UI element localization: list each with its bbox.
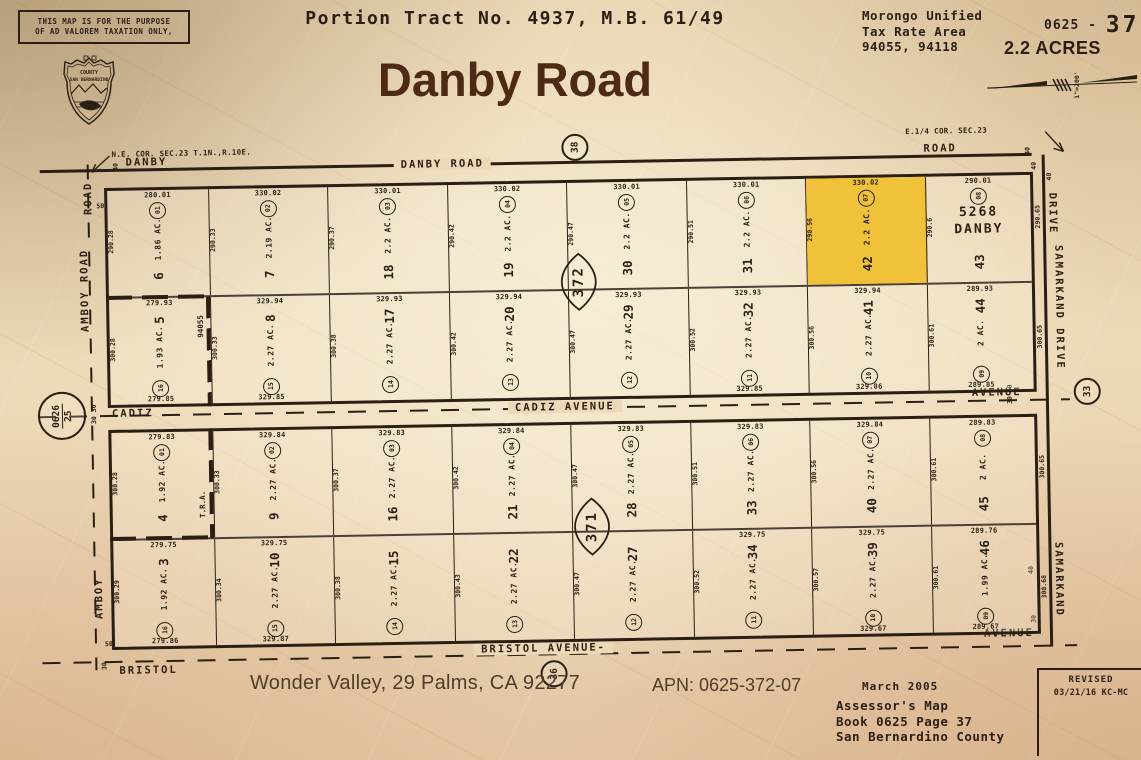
revision-box: REVISED 03/21/16 KC-MC bbox=[1037, 668, 1141, 756]
parcel-acreage: 2.27 AC. bbox=[624, 317, 634, 360]
cadiz-avenue-label-center: CADIZ AVENUE bbox=[508, 400, 622, 414]
samarkand-drive-label: SAMARKAND DRIVE bbox=[1052, 245, 1066, 370]
parcel-acreage: 1.92 AC. bbox=[158, 459, 168, 502]
parcel-circle-number: 12 bbox=[621, 371, 638, 388]
acreage-label: 2.2 ACRES bbox=[1004, 38, 1101, 59]
parcel-acreage: 1.93 AC. bbox=[155, 326, 165, 369]
parcel-lot-number: 30 bbox=[620, 260, 635, 275]
parcel-acreage: 2.2 AC. bbox=[503, 214, 513, 251]
dimension-top: 329.84 bbox=[213, 430, 332, 440]
county-seal: COUNTY SAN BERNARDINO bbox=[54, 54, 124, 128]
dimension-bottom: 329.85 bbox=[690, 384, 809, 394]
dimension-top: 279.75 bbox=[113, 540, 214, 550]
dimension-top: 329.83 bbox=[571, 424, 690, 434]
samarkand-drive-label-top: DRIVE bbox=[1046, 193, 1059, 235]
parcel-circle-number: 14 bbox=[386, 617, 403, 634]
parcel-acreage: 2.27 AC. bbox=[627, 451, 637, 494]
parcel-9[interactable]: 329.84300.33022.27 AC.9 bbox=[213, 429, 334, 537]
dimension-top: 329.94 bbox=[450, 292, 569, 302]
svg-text:371: 371 bbox=[584, 511, 601, 543]
dimension-top: 330.01 bbox=[687, 180, 806, 190]
parcel-acreage: 2.27 AC. bbox=[270, 566, 280, 609]
parcel-circle-number: 05 bbox=[618, 193, 635, 210]
parcel-circle-number: 02 bbox=[264, 442, 281, 459]
parcel-acreage: 2.27 AC. bbox=[385, 321, 395, 364]
parcel-acreage: 2.27 AC. bbox=[505, 319, 515, 362]
dimension-left: 300.52 bbox=[688, 324, 697, 354]
dimension-top: 290.01 bbox=[926, 176, 1030, 186]
parcel-31[interactable]: 330.01290.51062.2 AC.31 bbox=[687, 179, 808, 287]
parcel-32[interactable]: 329.93300.52112.27 AC.32329.85 bbox=[689, 287, 810, 395]
dimension-bottom: 329.67 bbox=[814, 624, 933, 634]
parcel-10[interactable]: 329.75300.34152.27 AC.10329.87 bbox=[215, 537, 336, 645]
parcel-lot-number: 29 bbox=[621, 305, 636, 320]
bristol-avenue-label-center: BRISTOL AVENUE- bbox=[474, 641, 613, 655]
apn-text: APN: 0625-372-07 bbox=[652, 675, 801, 696]
dimension-top: 279.83 bbox=[111, 432, 212, 442]
danby-road-label-center: DANBY ROAD bbox=[394, 157, 491, 171]
parcel-lot-number: 10 bbox=[267, 553, 282, 568]
parcel-lot-number: 44 bbox=[973, 298, 988, 313]
dimension-left: 300.56 bbox=[808, 322, 817, 352]
dimension-left: 300.47 bbox=[569, 326, 578, 356]
parcel-circle-number: 03 bbox=[383, 440, 400, 457]
parcel-circle-number: 08 bbox=[970, 187, 987, 204]
parcel-circle-number: 02 bbox=[260, 200, 277, 217]
dimension-left: 300.61 bbox=[932, 562, 941, 592]
parcel-acreage: 2.27 AC. bbox=[390, 563, 400, 606]
parcel-39[interactable]: 329.75300.57102.27 AC.39329.67 bbox=[812, 527, 933, 635]
dimension-left: 300.28 bbox=[111, 468, 120, 498]
parcel-acreage: 2.2 AC. bbox=[742, 210, 752, 247]
parcel-lot-number: 15 bbox=[386, 551, 401, 566]
dimension-top: 330.02 bbox=[209, 188, 328, 198]
parcel-acreage: 2.27 AC. bbox=[268, 458, 278, 501]
parcel-18[interactable]: 330.01290.37032.2 AC.18 bbox=[328, 185, 449, 293]
dimension-bottom: 289.67 bbox=[934, 622, 1038, 632]
parcel-circle-number: 01 bbox=[153, 444, 170, 461]
parcel-15[interactable]: 300.38142.27 AC.15 bbox=[334, 535, 455, 643]
assessor-map-text: Assessor's Map Book 0625 Page 37 San Ber… bbox=[836, 698, 1005, 745]
parcel-acreage: 2 AC. bbox=[976, 319, 985, 346]
samarkand-circle-33: 33 bbox=[1074, 378, 1101, 405]
parcel-7[interactable]: 330.02290.33022.19 AC.7 bbox=[209, 187, 330, 295]
parcel-acreage: 2.2 AC. bbox=[383, 216, 393, 253]
book-prefix: 0625 - bbox=[1044, 18, 1097, 33]
dimension-left: 300.52 bbox=[693, 566, 702, 596]
dimension-right-371-lower: 300.68 bbox=[1040, 575, 1048, 599]
dimension-bottom: 279.85 bbox=[111, 394, 212, 404]
dimension-left: 290.51 bbox=[686, 216, 695, 246]
parcel-40[interactable]: 329.84300.56072.27 AC.40 bbox=[811, 419, 932, 527]
dimension-right-372-lower: 300.65 bbox=[1036, 325, 1044, 349]
dimension-left: 300.43 bbox=[453, 571, 462, 601]
bristol-avenue-label-left: BRISTOL bbox=[119, 664, 177, 677]
dimension-top: 329.75 bbox=[693, 530, 812, 540]
dimension-top: 329.84 bbox=[452, 426, 571, 436]
parcel-circle-number: 05 bbox=[622, 435, 639, 452]
parcel-circle-number: 11 bbox=[745, 611, 762, 628]
dimension-left: 290.33 bbox=[208, 225, 217, 255]
e-quarter-corner-label: E.1/4 COR. SEC.23 bbox=[905, 126, 987, 136]
page-number: 37 bbox=[1106, 12, 1140, 38]
parcel-acreage: 1.86 AC. bbox=[153, 218, 163, 261]
dimension-left: 300.29 bbox=[113, 576, 122, 606]
parcel-lot-number: 3 bbox=[156, 558, 171, 566]
parcel-5[interactable]: 279.93300.28161.93 AC.5279.85 bbox=[109, 297, 212, 405]
parcel-16[interactable]: 329.83300.37032.27 AC.16 bbox=[332, 427, 453, 535]
dimension-top: 329.83 bbox=[691, 422, 810, 432]
parcel-lot-number: 31 bbox=[740, 258, 755, 273]
dimension-top: 329.94 bbox=[211, 296, 330, 306]
parcel-acreage: 2.27 AC. bbox=[507, 453, 517, 496]
disclaimer-box: THIS MAP IS FOR THE PURPOSE OF AD VALORE… bbox=[18, 10, 190, 44]
parcel-lot-number: 41 bbox=[860, 300, 875, 315]
dimension-top: 329.75 bbox=[215, 538, 334, 548]
revised-label: REVISED bbox=[1039, 675, 1141, 685]
block-label-371: 371 bbox=[572, 496, 613, 557]
danby-road-label-left: DANBY bbox=[126, 156, 168, 169]
dimension-right-371-upper: 300.65 bbox=[1038, 455, 1046, 479]
dimension-left: 300.33 bbox=[213, 467, 222, 497]
page-title: Danby Road bbox=[300, 52, 730, 107]
ref-page: 25 bbox=[62, 403, 73, 428]
dimension-bottom: 289.85 bbox=[929, 380, 1033, 390]
parcel-lot-number: 20 bbox=[502, 307, 517, 322]
parcel-acreage: 2.27 AC. bbox=[748, 557, 758, 600]
dimension-bottom: 279.86 bbox=[115, 636, 216, 646]
dimension-left: 290.28 bbox=[107, 226, 116, 256]
parcel-acreage: 2.27 AC. bbox=[266, 324, 276, 367]
revised-date: 03/21/16 KC-MC bbox=[1039, 688, 1141, 698]
dimension-top: 289.93 bbox=[928, 284, 1032, 294]
amboy-width-marker-top: 50 bbox=[96, 202, 104, 210]
parcel-3[interactable]: 279.75300.29161.92 AC.3279.86 bbox=[113, 539, 216, 647]
amboy-road-label: AMBOY ROAD bbox=[78, 249, 91, 332]
parcel-8[interactable]: 329.94300.33152.27 AC.8329.85 bbox=[211, 295, 332, 403]
parcel-circle-number: 12 bbox=[626, 613, 643, 630]
parcel-lot-number: 18 bbox=[381, 264, 396, 279]
dimension-top: 329.93 bbox=[689, 288, 808, 298]
parcel-circle-number: 14 bbox=[382, 376, 399, 393]
parcel-circle-number: 13 bbox=[506, 615, 523, 632]
parcel-lot-number: 9 bbox=[266, 512, 281, 520]
parcel-acreage: 2.27 AC. bbox=[868, 555, 878, 598]
parcel-lot-number: 39 bbox=[864, 542, 879, 557]
parcel-circle-number: 13 bbox=[502, 373, 519, 390]
parcel-20[interactable]: 329.94300.42132.27 AC.20 bbox=[450, 291, 571, 399]
parcel-circle-number: 07 bbox=[861, 431, 878, 448]
parcel-acreage: 2.2 AC. bbox=[623, 212, 633, 249]
dimension-left: 290.56 bbox=[806, 214, 815, 244]
amboy-road-label-bottom: AMBOY bbox=[93, 577, 106, 619]
parcel-lot-number: 4 bbox=[156, 514, 171, 522]
tra-label-tra: T.R.A. bbox=[198, 491, 207, 518]
parcel-lot-number: 17 bbox=[382, 309, 397, 324]
dimension-top: 289.83 bbox=[930, 418, 1034, 428]
parcel-lot-number: 16 bbox=[386, 506, 401, 521]
dimension-left: 290.37 bbox=[328, 223, 337, 253]
parcel-46[interactable]: 289.76300.61091.99 AC.46289.67 bbox=[932, 525, 1038, 633]
tract-title: Portion Tract No. 4937, M.B. 61/49 bbox=[300, 8, 730, 29]
parcel-lot-number: 43 bbox=[972, 254, 987, 269]
parcel-circle-number: 07 bbox=[857, 189, 874, 206]
danby-road-circle-38: 38 bbox=[561, 134, 588, 161]
parcel-44[interactable]: 289.93300.61092 AC.44289.85 bbox=[928, 283, 1034, 391]
dimension-left: 300.33 bbox=[210, 333, 219, 363]
parcel-acreage: 2.19 AC. bbox=[264, 216, 274, 259]
samarkand-width-marker-2: 40 bbox=[1030, 162, 1038, 170]
dimension-left: 300.47 bbox=[573, 568, 582, 598]
dimension-left: 300.61 bbox=[927, 320, 936, 350]
parcel-tract-label: 5268 DANBY bbox=[926, 202, 1031, 238]
parcel-lot-number: 34 bbox=[745, 544, 760, 559]
map-date: March 2005 bbox=[862, 680, 938, 693]
dimension-top: 330.01 bbox=[567, 182, 686, 192]
cadiz-width-marker-left: 30 30 bbox=[90, 404, 98, 424]
dimension-right-372-upper: 290.65 bbox=[1033, 205, 1041, 229]
parcel-acreage: 2.27 AC. bbox=[744, 315, 754, 358]
dimension-left: 300.42 bbox=[449, 329, 458, 359]
svg-text:COUNTY: COUNTY bbox=[80, 70, 98, 76]
dimension-top: 330.02 bbox=[806, 178, 925, 188]
danby-width-marker-right: 40 bbox=[1023, 147, 1031, 155]
samarkand-drive-label-bottom: SAMARKAND bbox=[1052, 542, 1065, 617]
parcel-circle-number: 08 bbox=[974, 429, 991, 446]
block-label-372: 372 bbox=[558, 251, 599, 312]
tra-label-94055: 94055 bbox=[196, 315, 205, 338]
parcel-acreage: 2.27 AC. bbox=[746, 449, 756, 492]
dimension-left: 300.61 bbox=[930, 454, 939, 484]
dimension-bottom: 329.86 bbox=[810, 382, 929, 392]
parcel-lot-number: 42 bbox=[859, 256, 874, 271]
dimension-left: 290.47 bbox=[567, 218, 576, 248]
dimension-top: 329.75 bbox=[812, 528, 931, 538]
parcel-lot-number: 8 bbox=[263, 315, 278, 323]
dimension-top: 289.76 bbox=[932, 526, 1036, 536]
parcel-acreage: 2.27 AC. bbox=[863, 313, 873, 356]
parcel-lot-number: 21 bbox=[505, 504, 520, 519]
parcel-19[interactable]: 330.02290.42042.2 AC.19 bbox=[448, 183, 569, 291]
parcel-lot-number: 45 bbox=[976, 496, 991, 511]
dimension-top: 329.93 bbox=[330, 294, 449, 304]
dimension-top: 280.01 bbox=[107, 190, 208, 200]
dimension-top: 329.84 bbox=[811, 420, 930, 430]
parcel-22[interactable]: 300.43132.27 AC.22 bbox=[454, 533, 575, 641]
parcel-acreage: 1.99 AC. bbox=[980, 553, 990, 596]
scale-bar: 1"=200' bbox=[985, 68, 1140, 102]
dimension-bottom: 329.85 bbox=[212, 392, 331, 402]
dimension-top: 330.02 bbox=[448, 184, 567, 194]
map-canvas: N.E. COR. SEC.23 T.1N.,R.10E. E.1/4 COR.… bbox=[25, 121, 1110, 700]
ref-book: 0626 bbox=[50, 403, 62, 428]
dimension-bottom: 329.87 bbox=[216, 634, 335, 644]
parcel-lot-number: 7 bbox=[262, 270, 277, 278]
parcel-21[interactable]: 329.84300.42042.27 AC.21 bbox=[452, 425, 573, 533]
map-reference-circle-0626-25: 0626 25 bbox=[38, 391, 87, 440]
parcel-acreage: 1.92 AC. bbox=[159, 567, 169, 610]
dimension-left: 290.42 bbox=[447, 221, 456, 251]
parcel-circle-number: 06 bbox=[742, 433, 759, 450]
parcel-lot-number: 6 bbox=[151, 272, 166, 280]
parcel-lot-number: 22 bbox=[506, 549, 521, 564]
cadiz-avenue-label-left: CADIZ bbox=[112, 407, 154, 420]
parcel-circle-number: 04 bbox=[499, 196, 516, 213]
svg-text:SAN BERNARDINO: SAN BERNARDINO bbox=[70, 77, 109, 83]
amboy-road-label-top: ROAD bbox=[82, 182, 95, 216]
dimension-left: 300.34 bbox=[214, 575, 223, 605]
parcel-17[interactable]: 329.93300.38142.27 AC.17 bbox=[330, 293, 451, 401]
ne-corner-arrow bbox=[81, 152, 111, 179]
dimension-left: 300.56 bbox=[810, 456, 819, 486]
dimension-left: 300.38 bbox=[330, 331, 339, 361]
scale-text: 1"=200' bbox=[1073, 71, 1081, 98]
dimension-top: 329.83 bbox=[332, 428, 451, 438]
parcel-6[interactable]: 280.01290.28011.86 AC.6 bbox=[107, 189, 210, 297]
parcel-lot-number: 32 bbox=[741, 302, 756, 317]
parcel-lot-number: 40 bbox=[864, 498, 879, 513]
location-text: Wonder Valley, 29 Palms, CA 92277 bbox=[205, 672, 625, 695]
parcel-33[interactable]: 329.83300.51062.27 AC.33 bbox=[691, 421, 812, 529]
parcel-acreage: 2.27 AC. bbox=[509, 561, 519, 604]
bristol-width-marker-left: 30 bbox=[100, 662, 108, 670]
parcel-acreage: 2.27 AC. bbox=[629, 559, 639, 602]
parcel-lot-number: 33 bbox=[744, 500, 759, 515]
parcel-lot-number: 5 bbox=[152, 316, 167, 324]
assessor-map-page: THIS MAP IS FOR THE PURPOSE OF AD VALORE… bbox=[0, 0, 1141, 760]
parcel-41[interactable]: 329.94300.56102.27 AC.41329.86 bbox=[808, 285, 929, 393]
parcel-45[interactable]: 289.83300.61082 AC.45 bbox=[930, 417, 1036, 525]
parcel-circle-number: 01 bbox=[149, 202, 166, 219]
parcel-4[interactable]: 279.83300.28011.92 AC.4 bbox=[111, 431, 214, 539]
dimension-left: 300.38 bbox=[334, 573, 343, 603]
parcel-lot-number: 19 bbox=[501, 262, 516, 277]
parcel-acreage: 2.27 AC. bbox=[866, 447, 876, 490]
dimension-top: 330.01 bbox=[328, 186, 447, 196]
dimension-left: 300.57 bbox=[812, 564, 821, 594]
dimension-top: 329.94 bbox=[808, 286, 927, 296]
tax-rate-area-text: Morongo Unified Tax Rate Area 94055, 941… bbox=[862, 8, 982, 55]
danby-road-label-right: ROAD bbox=[923, 142, 957, 155]
parcel-acreage: 2.27 AC. bbox=[388, 455, 398, 498]
parcel-acreage: 2.2 AC. bbox=[862, 208, 872, 245]
parcel-lot-number: 27 bbox=[625, 546, 640, 561]
parcel-lot-number: 46 bbox=[977, 540, 992, 555]
dimension-left: 300.47 bbox=[571, 460, 580, 490]
dimension-left: 300.37 bbox=[332, 465, 341, 495]
parcel-42[interactable]: 330.02290.56072.2 AC.42 bbox=[806, 177, 927, 285]
dimension-left: 300.42 bbox=[452, 463, 461, 493]
parcel-acreage: 2 AC. bbox=[978, 453, 987, 480]
parcel-circle-number: 04 bbox=[503, 437, 520, 454]
parcel-circle-number: 06 bbox=[738, 191, 755, 208]
e-quarter-corner-arrow bbox=[1043, 127, 1074, 158]
svg-text:372: 372 bbox=[570, 266, 587, 298]
parcel-lot-number: 28 bbox=[625, 502, 640, 517]
dimension-left: 300.51 bbox=[691, 458, 700, 488]
dimension-left: 300.28 bbox=[109, 334, 118, 364]
dimension-top: 279.93 bbox=[109, 298, 210, 308]
parcel-circle-number: 03 bbox=[379, 198, 396, 215]
parcel-43[interactable]: 290.01290.608435268 DANBY bbox=[926, 175, 1032, 283]
danby-width-marker-left: 40 bbox=[112, 163, 120, 171]
parcel-34[interactable]: 329.75300.52112.27 AC.34 bbox=[693, 529, 814, 637]
samarkand-width-marker-1: 40 bbox=[1045, 173, 1053, 181]
book-page-number: 0625 - 37 bbox=[1044, 12, 1140, 38]
